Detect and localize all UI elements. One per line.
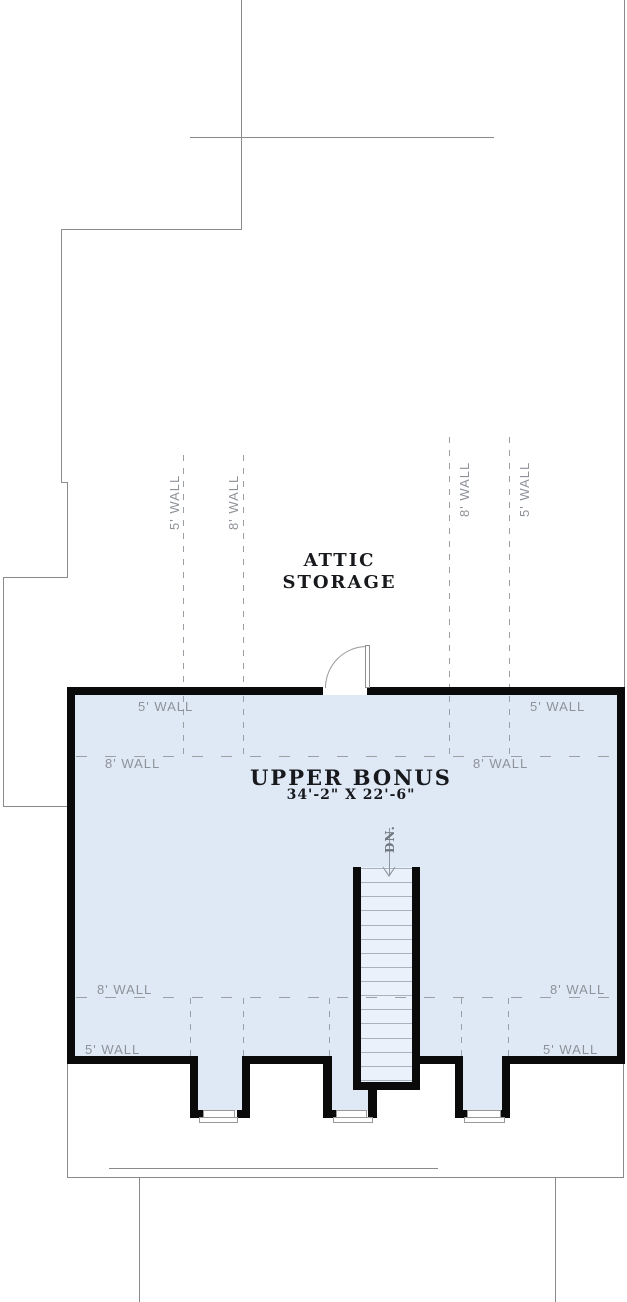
dormer-right-wall: [455, 1056, 463, 1118]
dashed-wall-line: [509, 696, 510, 756]
dormer-left-wall: [242, 1056, 250, 1118]
door-arc: [325, 646, 367, 688]
stair-tread: [361, 910, 412, 911]
wall-label-rotated: 8' WALL: [458, 449, 472, 517]
roof-outline-segment: [3, 577, 4, 807]
roof-outline-segment: [190, 137, 494, 138]
roof-outline-segment: [109, 1168, 438, 1169]
dashed-wall-line: [243, 455, 244, 687]
window-sill: [464, 1117, 505, 1123]
window-sill: [199, 1117, 238, 1123]
wall-label: 5' WALL: [85, 1043, 140, 1057]
stair-tread: [361, 1066, 412, 1067]
wall-right: [617, 687, 625, 1064]
stairwell: [361, 867, 412, 1082]
dashed-wall-line: [76, 997, 617, 998]
wall-bottom-a: [67, 1056, 198, 1064]
stair-wall-right: [412, 867, 420, 1090]
dormer-right-wall: [502, 1056, 510, 1118]
dormer-alcove-left: [198, 1056, 242, 1111]
roof-outline-segment: [555, 1177, 556, 1302]
dormer-left-foot: [237, 1110, 250, 1118]
stair-tread: [361, 981, 412, 982]
roof-outline-segment: [3, 806, 72, 807]
dashed-wall-line: [461, 998, 462, 1056]
roof-outline-segment: [67, 1064, 68, 1177]
wall-top-right: [367, 687, 625, 695]
stair-tread: [361, 995, 412, 996]
dormer-alcove-right: [463, 1056, 502, 1111]
wall-label: 8' WALL: [97, 983, 152, 997]
wall-bottom-d: [502, 1056, 625, 1064]
wall-label: 5' WALL: [138, 700, 193, 714]
stair-tread: [361, 1052, 412, 1053]
attic-storage-line1: ATTIC: [259, 550, 420, 572]
wall-label: 5' WALL: [543, 1043, 598, 1057]
wall-label: 8' WALL: [105, 757, 160, 771]
stair-tread: [361, 896, 412, 897]
down-arrow-icon: [381, 864, 397, 878]
dashed-wall-line: [190, 998, 191, 1056]
wall-bottom-c: [420, 1056, 455, 1064]
dashed-wall-line: [243, 998, 244, 1056]
stair-tread: [361, 882, 412, 883]
dashed-wall-line: [508, 998, 509, 1056]
dashed-wall-line: [509, 437, 510, 687]
stair-tread: [361, 1038, 412, 1039]
wall-top-left: [67, 687, 323, 695]
room-dimensions: 34'-2" X 22'-6": [250, 787, 452, 803]
dashed-wall-line: [449, 696, 450, 756]
dashed-wall-line: [329, 998, 330, 1056]
roof-outline-segment: [67, 482, 68, 578]
bonus-room-floor: [75, 695, 617, 1056]
wall-label-rotated: 5' WALL: [518, 449, 532, 517]
roof-outline-segment: [67, 1177, 624, 1178]
wall-label: 8' WALL: [550, 983, 605, 997]
roof-outline-segment: [61, 229, 62, 483]
dormer-middle-wall: [323, 1056, 332, 1118]
roof-outline-segment: [623, 1064, 624, 1177]
stair-tread: [361, 953, 412, 954]
wall-label: 5' WALL: [530, 700, 585, 714]
roof-outline-segment: [624, 0, 625, 688]
stair-direction-label: DN.: [384, 829, 397, 853]
stair-wall-left: [353, 867, 361, 1090]
stair-tread: [361, 1009, 412, 1010]
stair-tread: [361, 939, 412, 940]
roof-outline-segment: [3, 577, 68, 578]
roof-outline-segment: [61, 229, 242, 230]
dashed-wall-line: [183, 455, 184, 687]
floor-plan: DN. 5' WALL 8' WALL 8' WALL 5' WALL 5' W…: [0, 0, 627, 1302]
roof-outline-segment: [139, 1177, 140, 1302]
window-sill: [333, 1117, 373, 1123]
dashed-wall-line: [243, 696, 244, 756]
attic-storage-line2: STORAGE: [259, 572, 420, 594]
stair-tread: [361, 967, 412, 968]
roof-outline-segment: [241, 0, 242, 229]
stair-tread: [361, 1023, 412, 1024]
wall-label-rotated: 5' WALL: [168, 462, 182, 530]
wall-label: 8' WALL: [473, 757, 528, 771]
wall-bottom-b: [242, 1056, 332, 1064]
wall-label-rotated: 8' WALL: [227, 462, 241, 530]
dashed-wall-line: [449, 437, 450, 687]
attic-storage-label: ATTIC STORAGE: [259, 550, 420, 594]
stair-tread: [361, 925, 412, 926]
wall-left: [67, 687, 75, 1064]
stair-wall-bottom: [353, 1082, 420, 1090]
door-leaf: [365, 645, 370, 688]
dormer-left-wall: [190, 1056, 198, 1118]
stair-tread: [361, 1080, 412, 1081]
